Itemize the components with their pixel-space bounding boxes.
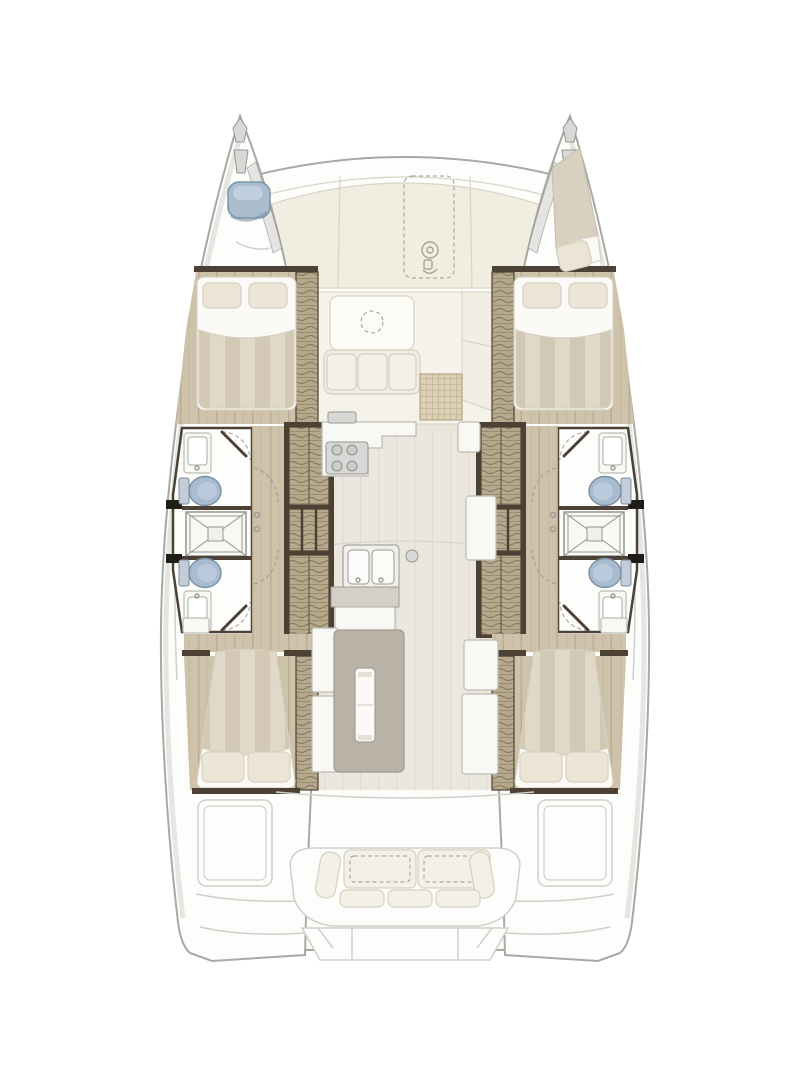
starboard-bench (462, 694, 498, 774)
starboard-seat (466, 496, 496, 560)
galley-appliance (328, 412, 356, 423)
bow-hatch-highlight (233, 186, 263, 200)
seat-cushion (340, 890, 384, 907)
burner (347, 445, 357, 455)
burner (347, 461, 357, 471)
bench-cushion (358, 354, 387, 390)
starboard-bench (464, 640, 498, 690)
seat-cushion (436, 890, 480, 907)
burner (332, 445, 342, 455)
island-counter (331, 587, 399, 607)
seat-cushion (388, 890, 432, 907)
forward-cockpit-table (330, 296, 414, 350)
deck-plan-canvas (0, 0, 810, 1080)
deck-grating (420, 374, 462, 420)
bench-cushion (327, 354, 356, 390)
stove (326, 442, 368, 474)
bench-cushion (389, 354, 416, 390)
starboard-counter (458, 422, 480, 452)
saloon-table (334, 630, 404, 772)
door-knob (406, 550, 418, 562)
sink-basin (348, 550, 369, 584)
burner (332, 461, 342, 471)
forward-cockpit (284, 292, 526, 436)
aft-bench (290, 848, 520, 926)
swim-platform (302, 928, 508, 960)
catamaran-deck-plan (0, 0, 810, 1080)
